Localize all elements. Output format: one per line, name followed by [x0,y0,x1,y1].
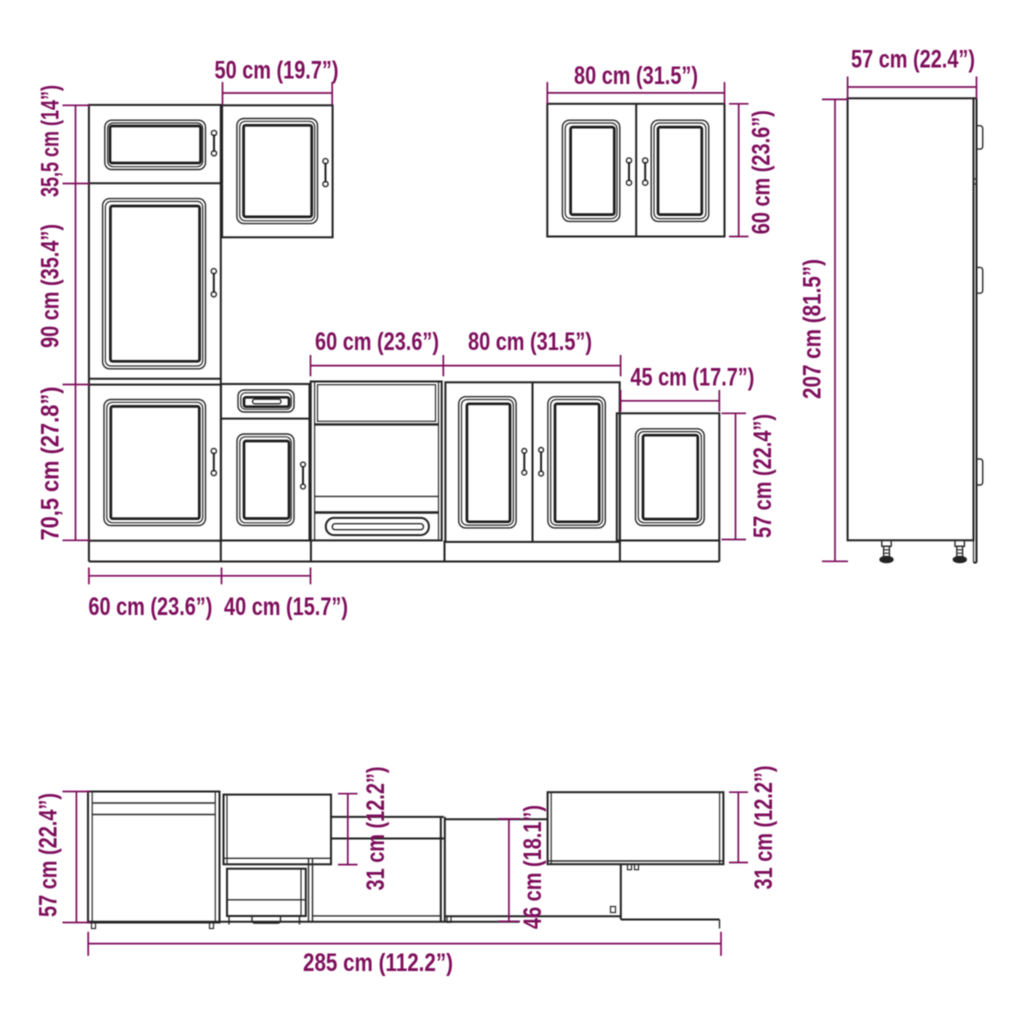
svg-text:207 cm (81.5”): 207 cm (81.5”) [798,259,826,399]
svg-text:57 cm (22.4”): 57 cm (22.4”) [749,414,777,538]
svg-text:90 cm (35.4”): 90 cm (35.4”) [36,224,64,348]
svg-text:60 cm (23.6”): 60 cm (23.6”) [315,328,439,356]
svg-text:70,5 cm (27.8”): 70,5 cm (27.8”) [36,387,64,541]
svg-text:45 cm (17.7”): 45 cm (17.7”) [630,364,754,392]
svg-text:80 cm (31.5”): 80 cm (31.5”) [468,328,592,356]
svg-text:60 cm (23.6”): 60 cm (23.6”) [747,110,775,234]
svg-text:285 cm (112.2”): 285 cm (112.2”) [303,949,453,977]
svg-text:40 cm (15.7”): 40 cm (15.7”) [224,593,348,621]
svg-text:31 cm (12.2”): 31 cm (12.2”) [362,767,390,891]
svg-text:60 cm (23.6”): 60 cm (23.6”) [88,593,212,621]
svg-text:35,5 cm (14”): 35,5 cm (14”) [36,85,64,197]
svg-text:46 cm (18.1”): 46 cm (18.1”) [519,805,547,929]
svg-text:80 cm (31.5”): 80 cm (31.5”) [574,62,698,90]
svg-text:57 cm (22.4”): 57 cm (22.4”) [34,793,62,917]
svg-text:31 cm (12.2”): 31 cm (12.2”) [750,766,778,890]
svg-text:50 cm (19.7”): 50 cm (19.7”) [215,57,339,85]
svg-text:57 cm (22.4”): 57 cm (22.4”) [851,46,975,74]
